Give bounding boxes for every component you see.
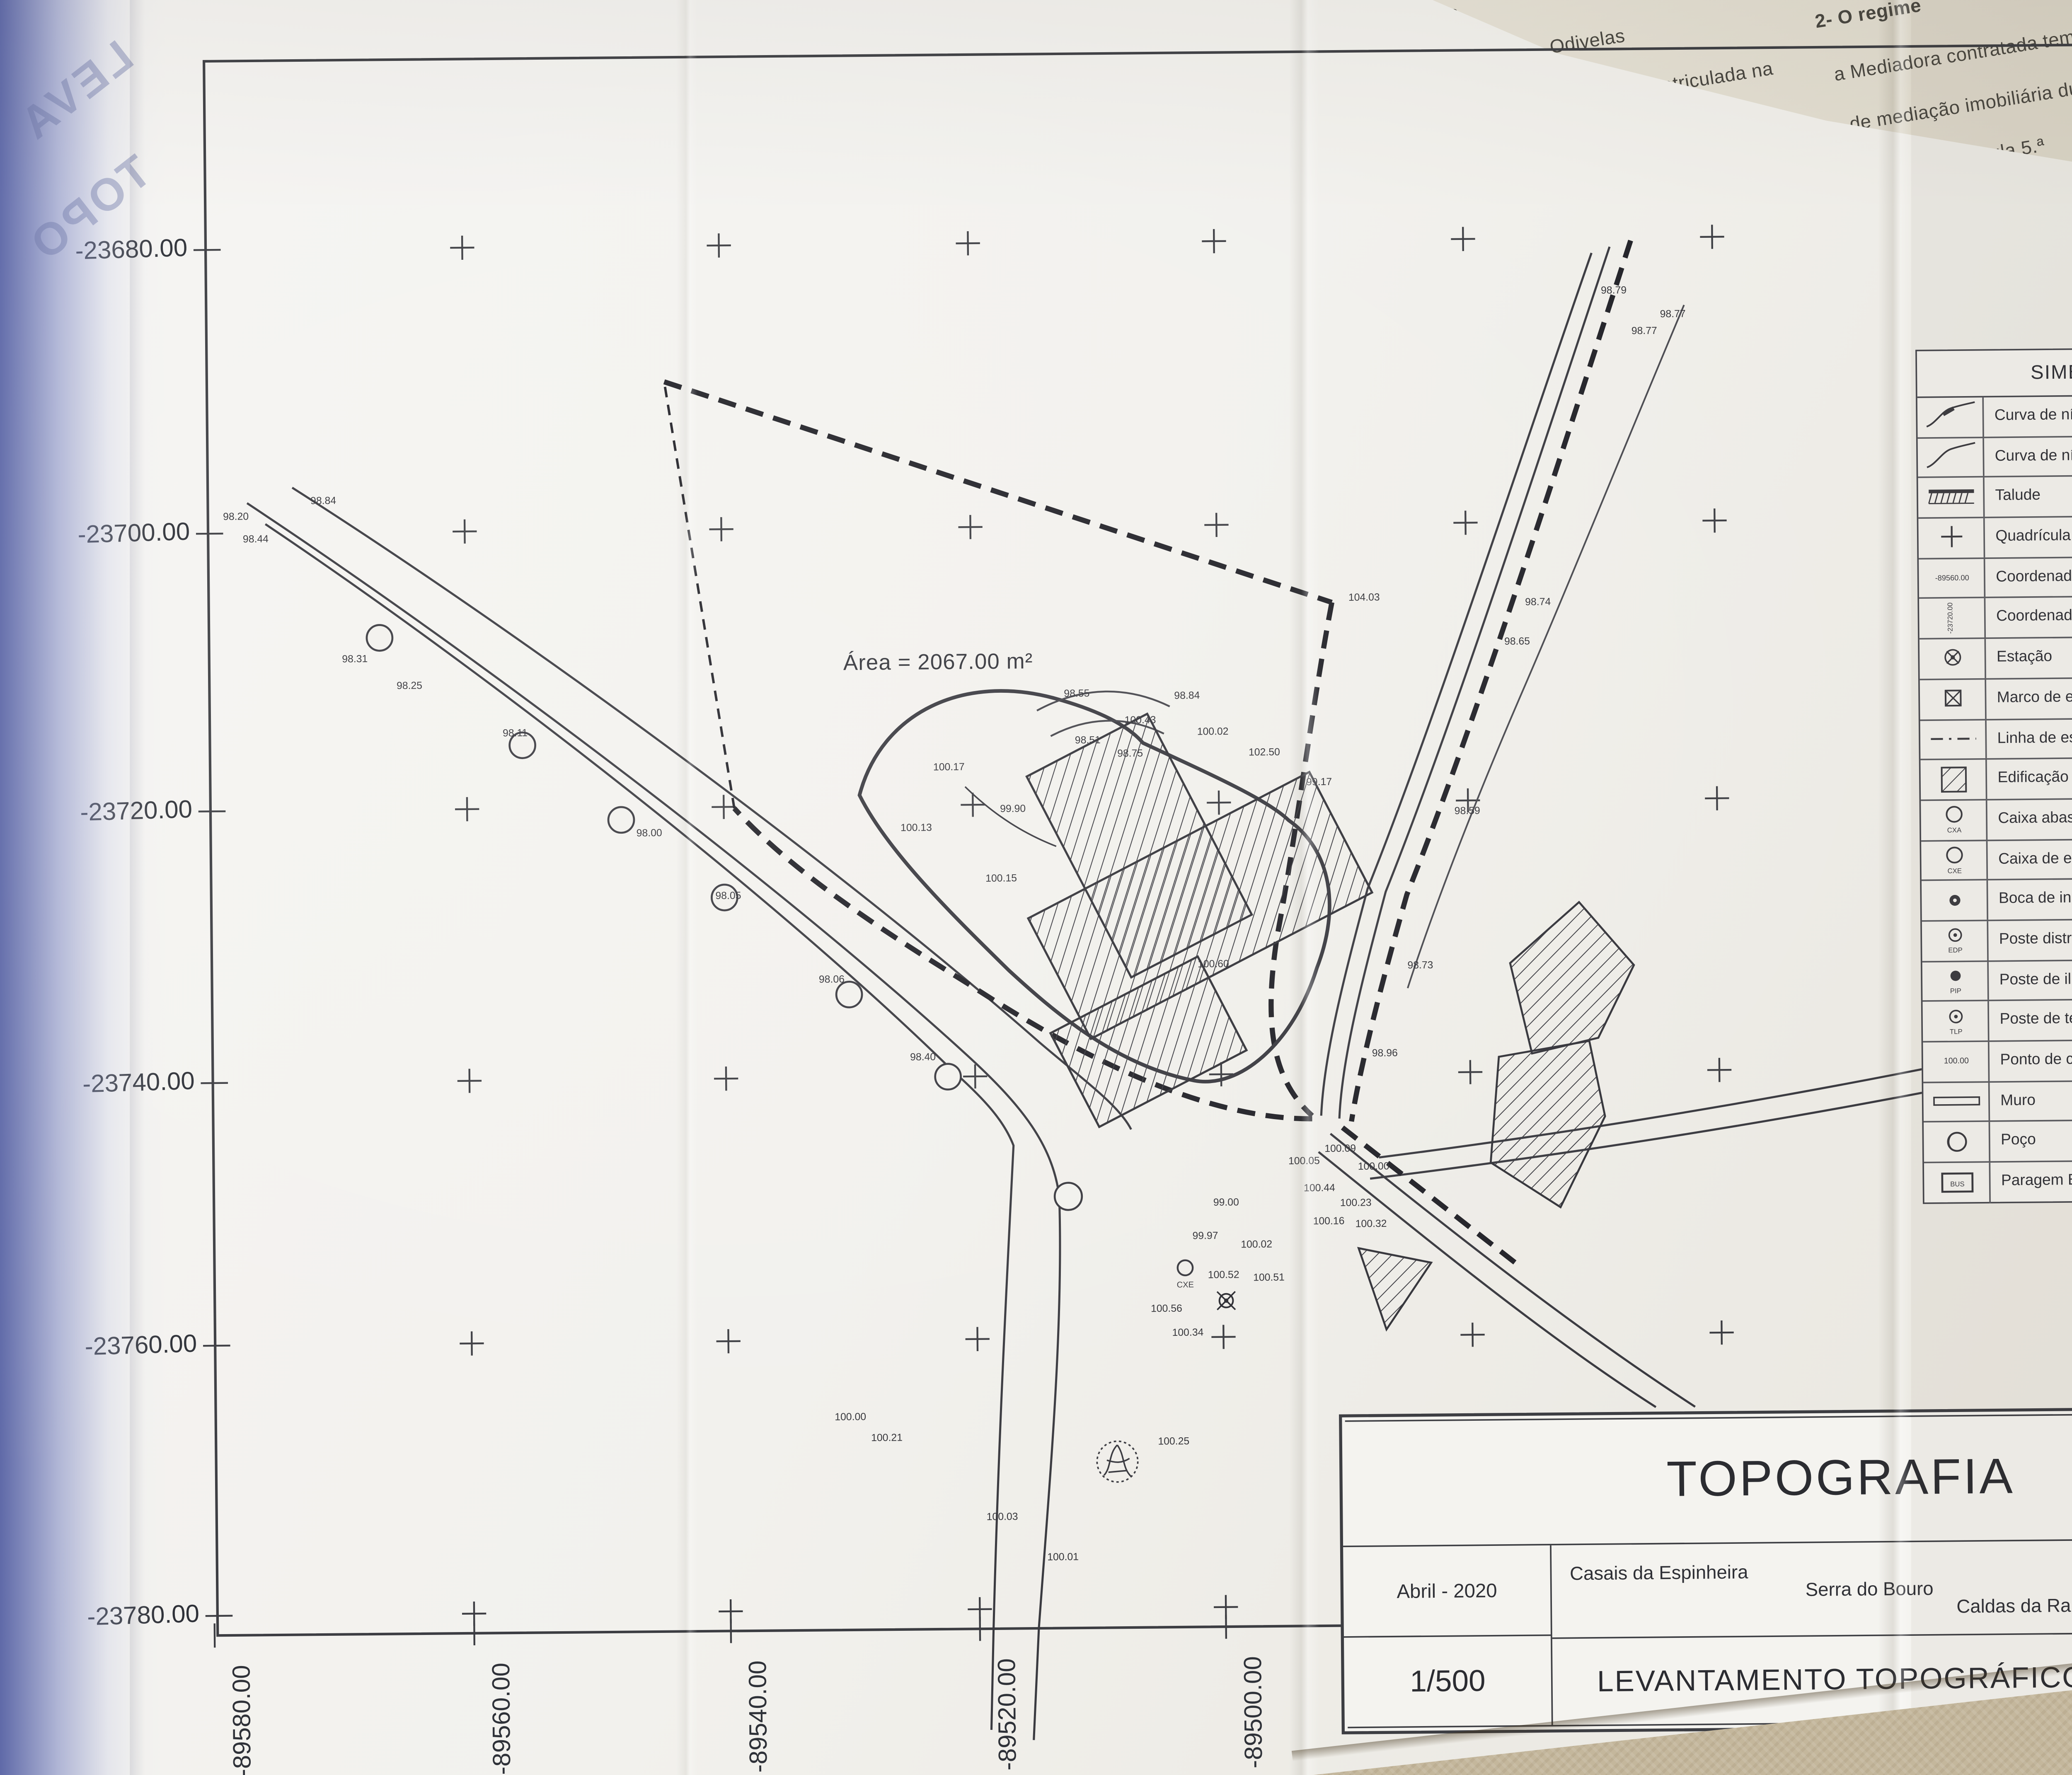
spot-elevation: 100.09 (1324, 1143, 1356, 1154)
boundary-line-icon (1920, 720, 1987, 759)
spot-elevation: 98.55 (1064, 688, 1089, 699)
svg-text:CXE: CXE (1947, 867, 1961, 875)
spot-elevation: 98.65 (1504, 636, 1530, 647)
legend-row: BUSParagem BUS (1924, 1160, 2072, 1204)
spot-elevation: 98.40 (910, 1052, 936, 1063)
sewer-box-icon: CXE (1921, 841, 1988, 880)
wall-icon (1923, 1082, 1990, 1122)
legend-row: EDPPoste distribuição EDP (1922, 919, 2072, 962)
spot-elevation: 98.25 (397, 680, 422, 692)
svg-text:EDP: EDP (1947, 947, 1962, 955)
spot-elevation: 100.56 (1151, 1303, 1182, 1315)
spot-elevation: 98.74 (1525, 596, 1551, 608)
spot-elevation: 98.77 (1631, 325, 1657, 337)
legend-row: Talude (1918, 476, 2072, 519)
main-building-hatched (1026, 712, 1374, 1127)
spot-elevation: 100.25 (1158, 1436, 1189, 1447)
x-coordinate-label: -89520.00 (994, 1658, 1024, 1770)
spot-elevation: 98.77 (1660, 308, 1686, 320)
legend-label: Muro (1990, 1080, 2072, 1121)
legend-box: SIMBOLOGIA Curva de nível mestra com cot… (1915, 346, 2072, 1204)
telecom-pole-icon: TLP (1922, 1001, 1989, 1041)
x-coordinate-label: -89560.00 (488, 1663, 518, 1775)
spot-elevation: 99.90 (1000, 803, 1026, 815)
y-coordinate-label: -23740.00 (28, 1068, 195, 1101)
spot-elevation: 100.60 (1198, 958, 1229, 970)
field-line (1402, 305, 1690, 988)
station-icon (1217, 1291, 1235, 1310)
legend-label: Boca de incêndio (1988, 878, 2072, 920)
legend-row: Linha de estrema (1920, 717, 2072, 761)
spot-elevation-icon: 100.00 (1923, 1042, 1990, 1081)
well-icon (1924, 1122, 1990, 1162)
spot-elevation: 100.00 (835, 1411, 866, 1423)
legend-label: Caixa de esgoto doméstico (1987, 838, 2072, 879)
spot-elevation: 98.84 (310, 495, 336, 507)
spot-elevation: 100.13 (900, 822, 932, 834)
legend-label: Poço (1990, 1120, 2072, 1161)
spot-elevation: 100.21 (871, 1432, 903, 1444)
x-coordinate-label: -89580.00 (228, 1665, 258, 1775)
spot-elevation: 98.06 (819, 974, 845, 985)
bus-stop-icon: BUS (1924, 1163, 1991, 1204)
svg-text:BUS: BUS (1949, 1180, 1964, 1188)
edp-pole-icon: EDP (1922, 921, 1989, 960)
svg-text:100.00: 100.00 (1943, 1057, 1968, 1066)
spot-elevation: 100.51 (1253, 1272, 1285, 1284)
legend-label: Talude (1985, 476, 2072, 517)
svg-text:-23720.00: -23720.00 (1945, 602, 1953, 634)
contour-minor-icon (1918, 438, 1985, 477)
spot-elevation: 100.44 (1304, 1183, 1335, 1194)
legend-row: -23720.00Coordenada m (1919, 596, 2072, 640)
y-coordinate-label: -23760.00 (31, 1330, 198, 1364)
spot-elevation: 98.84 (1174, 690, 1200, 701)
grid-cross-icon (1918, 518, 1985, 558)
topographic-drawing: CXE 98.2098.4498.8498.3198.2598.1198.009… (0, 0, 2072, 1775)
legend-row: Poço (1924, 1120, 2072, 1163)
station-icon (1920, 639, 1986, 679)
y-coordinate-label: -23700.00 (24, 519, 191, 552)
spot-elevation: 98.05 (715, 890, 741, 902)
legend-row: CXACaixa abastecimento de água (1921, 798, 2072, 841)
legend-label: Quadrícula de coordenação (1985, 516, 2072, 557)
sewer-box-icon: CXE (1176, 1260, 1194, 1289)
legend-row: Quadrícula de coordenação (1918, 516, 2072, 559)
utility-manhole-circles (367, 619, 1082, 1216)
water-box-icon: CXA (1921, 800, 1987, 839)
legend-row: TLPPoste de telecomunicações (1922, 999, 2072, 1042)
spot-elevation: 98.31 (342, 653, 368, 665)
legend-row: 100.00Ponto de cota (1923, 1040, 2072, 1083)
legend-label: Coordenada m (1985, 596, 2072, 638)
spot-elevation: 100.15 (985, 873, 1017, 884)
legend-row: Boca de incêndio (1922, 878, 2072, 922)
boundary-mark-icon (1920, 680, 1987, 719)
svg-text:TLP: TLP (1949, 1027, 1962, 1035)
title-block-project: TOPOGRAFIA (1342, 1409, 2072, 1547)
legend-label: Curva de nível mestra com cota (1984, 395, 2072, 436)
legend-title: SIMBOLOGIA (1917, 348, 2072, 398)
legend-row: Curva de nível secundária (1918, 435, 2072, 479)
y-coordinate-label: -23780.00 (33, 1601, 200, 1634)
legend-label: Poste de telecomunicações (1989, 999, 2072, 1040)
spot-elevation: 100.00 (1358, 1161, 1389, 1172)
x-coordinate-label: -89500.00 (1240, 1656, 1270, 1768)
spot-elevation: 99.97 (1192, 1230, 1218, 1242)
spot-elevation: 98.11 (503, 728, 528, 739)
spot-elevation: 98.79 (1601, 285, 1627, 296)
spot-elevation: 100.02 (1197, 726, 1229, 738)
coord-p-icon: -89560.00 (1919, 559, 1985, 598)
spot-elevation: 99.00 (1213, 1197, 1239, 1208)
legend-row: Marco de estrema de propriedade (1920, 677, 2072, 721)
hydrant-icon (1922, 881, 1988, 920)
spot-elevation: 99.17 (1306, 776, 1332, 788)
y-coordinate-label: -23720.00 (26, 796, 193, 830)
legend-label: Paragem BUS (1990, 1160, 2072, 1203)
title-block-locality: Casais da Espinheira (1570, 1562, 1748, 1584)
legend-row: Muro (1923, 1080, 2072, 1123)
coord-m-icon: -23720.00 (1919, 599, 1986, 638)
building-icon (1920, 760, 1987, 799)
spot-elevation: 100.34 (1172, 1327, 1203, 1338)
legend-row: PIPPoste de iluminação (1922, 959, 2072, 1002)
legend-row: Edificação (1920, 757, 2072, 801)
tree-icon (1097, 1441, 1138, 1482)
legend-row: CXECaixa de esgoto doméstico (1921, 838, 2072, 881)
photographed-survey-sheet: a social naAdrião. Odivelas15362107, mat… (0, 0, 2072, 1775)
title-block-scale: 1/500 (1344, 1636, 1552, 1728)
legend-row: -89560.00Coordenada p (1919, 556, 2072, 600)
legend-rows: Curva de nível mestra com cotaCurva de n… (1917, 395, 2072, 1204)
svg-text:CXA: CXA (1946, 827, 1961, 834)
spot-elevation: 98.00 (637, 827, 662, 839)
x-coordinate-label: -89540.00 (745, 1660, 775, 1773)
spot-elevation: 98.73 (1407, 960, 1433, 971)
legend-label: Estação (1986, 636, 2072, 678)
spot-elevation: 100.23 (1340, 1197, 1372, 1209)
spot-elevation: 102.50 (1249, 747, 1280, 758)
title-block-date: Abril - 2020 (1343, 1545, 1551, 1638)
spot-elevation-labels: 98.2098.4498.8498.3198.2598.1198.0098.05… (221, 284, 1697, 1570)
spot-elevation: 98.75 (1117, 748, 1143, 759)
slope-icon (1918, 478, 1985, 518)
legend-label: Marco de estrema de propriedade (1986, 677, 2072, 718)
spot-elevation: 100.43 (1125, 714, 1156, 726)
svg-text:-89560.00: -89560.00 (1934, 574, 1968, 583)
legend-label: Poste de iluminação (1989, 959, 2072, 1000)
spot-elevation: 98.51 (1075, 735, 1101, 746)
legend-label: Linha de estrema (1987, 717, 2072, 759)
parcel-area-label: Área = 2067.00 m² (843, 650, 1033, 676)
spot-elevation: 100.52 (1208, 1269, 1239, 1281)
svg-text:CXE: CXE (1177, 1280, 1194, 1289)
svg-text:PIP: PIP (1949, 987, 1961, 995)
spot-elevation: 100.17 (933, 762, 965, 773)
spot-elevation: 100.02 (1241, 1239, 1272, 1250)
legend-row: Curva de nível mestra com cota (1917, 395, 2072, 438)
contour-major-icon (1917, 397, 1984, 437)
legend-label: Ponto de cota (1990, 1040, 2072, 1081)
spot-elevation: 100.01 (1047, 1551, 1079, 1563)
spot-elevation: 100.03 (987, 1511, 1018, 1523)
spot-elevation: 100.05 (1288, 1155, 1320, 1167)
spot-elevation: 98.59 (1455, 805, 1480, 817)
spot-elevation: 98.44 (243, 534, 269, 545)
spot-elevation: 104.03 (1348, 592, 1380, 603)
legend-label: Curva de nível secundária (1984, 435, 2072, 476)
title-block-municipality: Caldas da Rainha (1956, 1595, 2072, 1617)
spot-elevation: 100.32 (1356, 1218, 1387, 1230)
spot-elevation: 98.96 (1372, 1047, 1398, 1059)
y-coordinate-label: -23680.00 (21, 235, 188, 268)
light-pole-icon: PIP (1922, 961, 1989, 1001)
legend-label: Poste distribuição EDP (1988, 919, 2072, 960)
spot-elevation: 98.20 (223, 511, 249, 522)
legend-label: Caixa abastecimento de água (1987, 798, 2072, 839)
legend-row: Estação (1920, 636, 2072, 680)
spot-elevation: 100.16 (1313, 1216, 1345, 1227)
title-block-parish: Serra do Bouro (1806, 1578, 1934, 1601)
legend-label: Edificação (1987, 757, 2072, 799)
legend-label: Coordenada p (1985, 556, 2072, 597)
